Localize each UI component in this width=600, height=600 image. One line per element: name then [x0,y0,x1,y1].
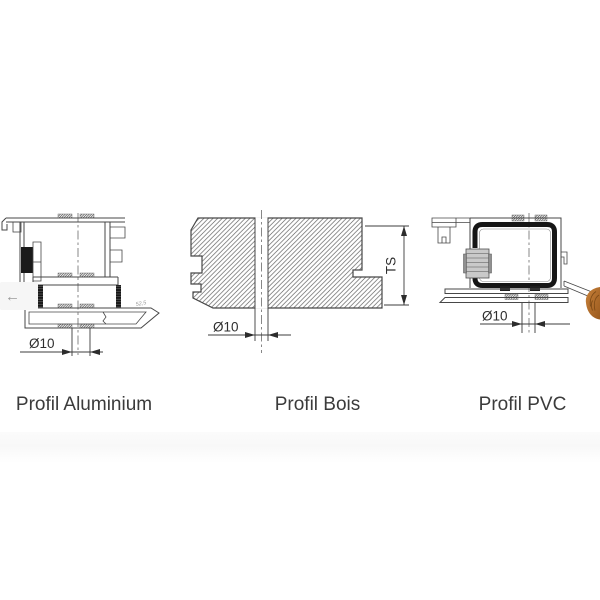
sill-profile: 52,5 [25,300,159,328]
fitting-roller [464,249,492,278]
left-arrow-icon: ← [5,288,20,305]
pvc-profile-diagram: Ø10 [418,205,600,367]
hole-dimension: Ø10 [208,308,291,341]
product-image-stage: 52,5 Ø10 TS [0,0,600,600]
hole-dimension-label: Ø10 [213,320,239,335]
hole-dimension: Ø10 [20,328,103,356]
carousel-prev-button[interactable]: ← [0,282,38,310]
height-dimension-label: TS [384,257,399,274]
slide-label-wood: Profil Bois [235,392,400,418]
slide-wood-drawing[interactable]: TS Ø10 [185,205,415,372]
angle-annotation: 52,5 [135,300,148,308]
slide-label-aluminium: Profil Aluminium [4,392,164,418]
gasket-seal [21,247,33,273]
right-wall [105,222,125,277]
wood-section [191,217,382,309]
slide-label-pvc: Profil PVC [440,392,600,418]
hole-dimension-label: Ø10 [29,336,55,351]
next-slide-preview [586,287,600,320]
left-wall [20,222,41,285]
page-shadow [0,432,600,464]
hole-dimension-label: Ø10 [482,309,508,324]
wood-profile-diagram: TS Ø10 [185,205,415,367]
left-attachment [432,218,470,243]
fixing-screws [38,285,121,308]
slide-pvc-drawing[interactable]: Ø10 [418,205,600,372]
hole-dimension: Ø10 [480,303,570,333]
